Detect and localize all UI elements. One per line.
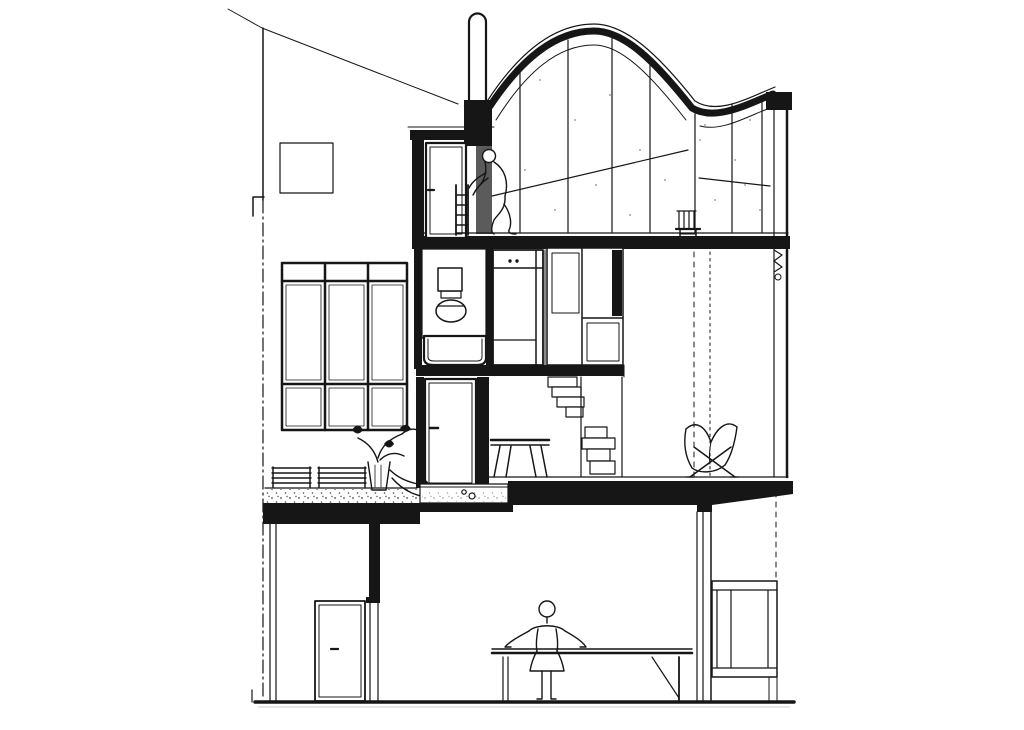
counter-unit [420,484,508,503]
left-window [282,263,407,430]
toilet-bowl [436,300,466,322]
studio-floor-slab [412,236,790,249]
dining-table [492,649,692,700]
studio-chair [676,211,700,238]
cistern [438,268,462,291]
ground-floor-left-wall [270,524,276,701]
reference-dashed-lines [694,252,776,580]
terrace-floor [265,488,417,503]
section-drawing: Black-and-white architectural cross-sect… [0,0,1024,730]
boundary-mast [252,28,264,702]
lower-stair-flight [582,427,615,474]
stool [491,440,549,477]
mezzanine-slab [416,365,624,377]
butterfly-chair [685,424,739,477]
terrace-bench [272,467,366,487]
glazing-speckle [524,79,761,216]
ground-floor-partition [366,512,380,701]
right-low-cabinet [712,581,777,702]
right-exterior-wall [766,92,792,477]
roof-access-door [426,143,466,238]
ground-line [255,702,794,707]
standing-figure [505,601,586,699]
page: Black-and-white architectural cross-sect… [0,0,1024,730]
bathroom [414,249,486,369]
wardrobe [545,248,623,365]
ground-floor-door [315,601,365,701]
toilet-tank [441,291,461,298]
dining-room-right-wall [697,512,711,701]
architectural-section-figure: Black-and-white architectural cross-sect… [0,0,1024,730]
mid-level-door [416,377,489,488]
rooftop-skylight-square [280,143,333,193]
cupboard [486,249,543,369]
